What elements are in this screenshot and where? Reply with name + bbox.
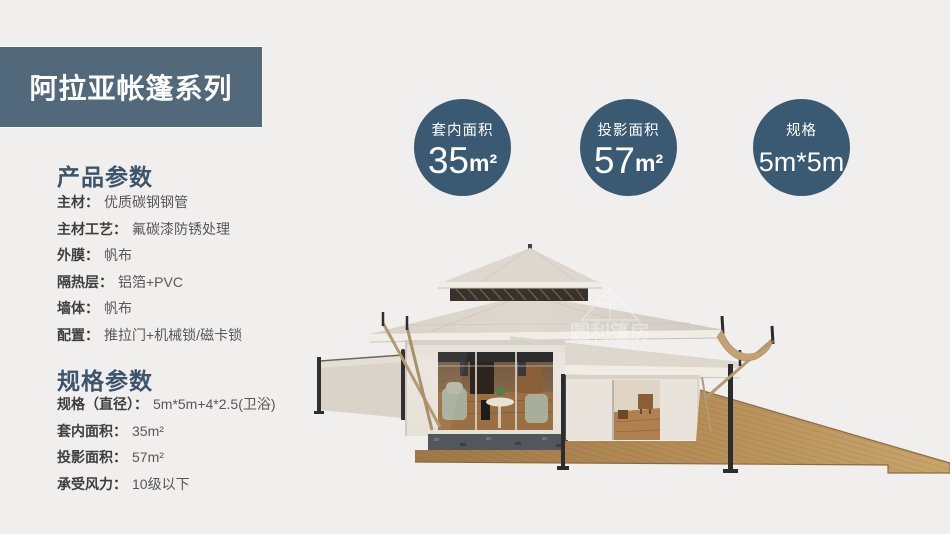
- page: 阿拉亚帐篷系列 产品参数 主材：优质碳钢钢管 主材工艺：氟碳漆防锈处理 外膜：帆…: [0, 0, 950, 534]
- param-label: 规格（直径）：: [57, 396, 148, 412]
- series-title-banner: 阿拉亚帐篷系列: [0, 47, 262, 127]
- watermark-cn: 圆利篷房: [570, 320, 650, 344]
- badge-label: 套内面积: [414, 119, 511, 140]
- param-value: 5m*5m+4*2.5(卫浴): [153, 396, 276, 412]
- tent-stone-base: [428, 434, 568, 451]
- badge-value: 5m*5m: [759, 147, 845, 177]
- param-label: 墙体：: [57, 300, 99, 316]
- badge-label: 规格: [753, 119, 850, 140]
- tent-main-roof: [370, 294, 725, 342]
- param-value: 推拉门+机械锁/磁卡锁: [104, 327, 242, 343]
- param-value: 10级以下: [132, 476, 190, 492]
- param-label: 隔热层：: [57, 274, 113, 290]
- badge-label: 投影面积: [580, 119, 677, 140]
- param-row: 配置：推拉门+机械锁/磁卡锁: [57, 322, 242, 349]
- tent-illustration: 圆利篷房 YUELI TENT: [310, 244, 950, 534]
- param-row: 墙体：帆布: [57, 295, 242, 322]
- badge-interior-area: 套内面积 35m²: [414, 99, 511, 196]
- param-row: 主材：优质碳钢钢管: [57, 189, 242, 216]
- param-value: 帆布: [104, 247, 132, 263]
- param-row: 投影面积：57m²: [57, 444, 276, 471]
- tent-annex-wall: [563, 375, 700, 440]
- tent-side-panel: [314, 349, 405, 420]
- param-row: 承受风力：10级以下: [57, 471, 276, 498]
- badge-unit: m²: [635, 150, 663, 176]
- param-value: 帆布: [104, 300, 132, 316]
- badge-value: 57: [594, 140, 635, 181]
- param-row: 套内面积：35m²: [57, 418, 276, 445]
- badge-projection-area: 投影面积 57m²: [580, 99, 677, 196]
- tent-glass-door: [438, 352, 553, 430]
- param-row: 隔热层：铝箔+PVC: [57, 269, 242, 296]
- product-params-list: 主材：优质碳钢钢管 主材工艺：氟碳漆防锈处理 外膜：帆布 隔热层：铝箔+PVC …: [57, 189, 242, 348]
- badge-unit: m²: [469, 150, 497, 176]
- param-row: 主材工艺：氟碳漆防锈处理: [57, 216, 242, 243]
- param-row: 规格（直径）：5m*5m+4*2.5(卫浴): [57, 391, 276, 418]
- product-params-heading: 产品参数: [57, 158, 153, 192]
- badge-value: 35: [428, 140, 469, 181]
- param-value: 35m²: [132, 423, 164, 439]
- param-label: 主材：: [57, 194, 99, 210]
- param-value: 优质碳钢钢管: [104, 194, 188, 210]
- param-value: 铝箔+PVC: [118, 274, 183, 290]
- spec-params-list: 规格（直径）：5m*5m+4*2.5(卫浴) 套内面积：35m² 投影面积：57…: [57, 391, 276, 497]
- param-label: 主材工艺：: [57, 221, 127, 237]
- tent-main-wall: [405, 340, 568, 451]
- tent-top-roof: [438, 244, 602, 301]
- param-label: 承受风力：: [57, 476, 127, 492]
- tent-annex-opening: [613, 380, 660, 440]
- badge-size: 规格 5m*5m: [753, 99, 850, 196]
- param-label: 套内面积：: [57, 423, 127, 439]
- param-label: 外膜：: [57, 247, 99, 263]
- page-title: 阿拉亚帐篷系列: [29, 67, 232, 107]
- param-label: 投影面积：: [57, 449, 127, 465]
- param-label: 配置：: [57, 327, 99, 343]
- param-value: 57m²: [132, 449, 164, 465]
- param-row: 外膜：帆布: [57, 242, 242, 269]
- param-value: 氟碳漆防锈处理: [132, 221, 230, 237]
